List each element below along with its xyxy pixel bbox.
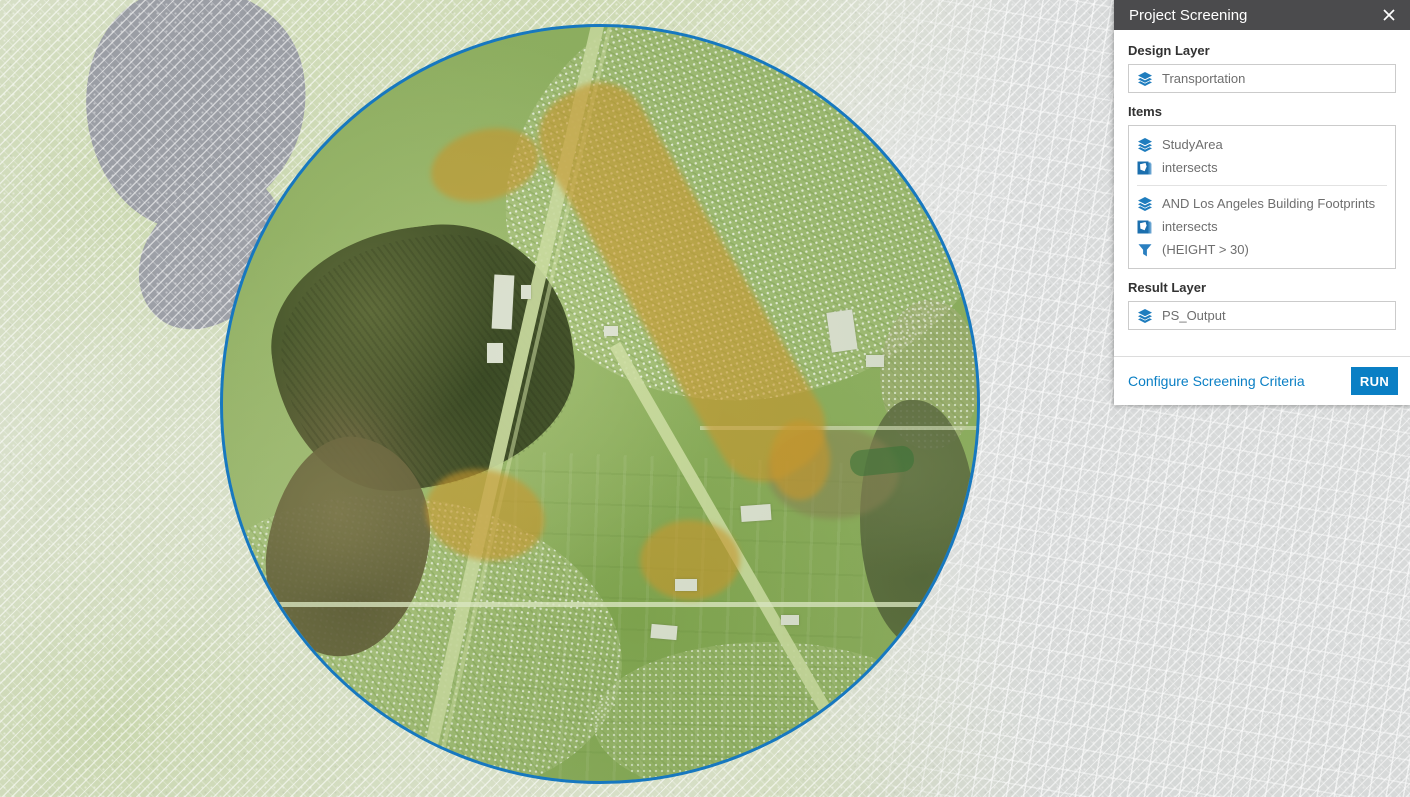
panel-title: Project Screening <box>1129 7 1378 24</box>
building-shape <box>492 275 515 330</box>
run-button[interactable]: RUN <box>1351 367 1398 395</box>
result-layer-input[interactable]: PS_Output <box>1128 301 1396 330</box>
building-shape <box>487 343 503 363</box>
app-window: Project Screening Design Layer Transport… <box>0 0 1410 797</box>
item-text: (HEIGHT > 30) <box>1162 242 1249 257</box>
item-row-building-footprints[interactable]: AND Los Angeles Building Footprints <box>1137 192 1387 215</box>
item-row-intersects-2[interactable]: intersects <box>1137 215 1387 238</box>
building-shape <box>826 309 857 352</box>
close-icon <box>1381 7 1397 23</box>
panel-header: Project Screening <box>1114 0 1410 30</box>
building-shape <box>781 615 799 625</box>
building-shape <box>521 285 531 299</box>
panel-body: Design Layer Transportation Items <box>1114 30 1410 356</box>
layers-icon <box>1137 308 1153 324</box>
layers-icon <box>1137 137 1153 153</box>
close-button[interactable] <box>1378 4 1400 26</box>
natural-area-right <box>860 400 975 650</box>
layers-icon <box>1137 196 1153 212</box>
study-area-circle[interactable] <box>220 24 980 784</box>
building-shape <box>740 504 771 522</box>
items-group-divider <box>1137 185 1387 186</box>
panel-footer: Configure Screening Criteria RUN <box>1114 356 1410 405</box>
intersects-icon <box>1137 219 1153 235</box>
item-row-studyarea[interactable]: StudyArea <box>1137 133 1387 156</box>
configure-screening-criteria-link[interactable]: Configure Screening Criteria <box>1128 373 1305 389</box>
building-shape <box>675 579 697 591</box>
item-row-intersects-1[interactable]: intersects <box>1137 156 1387 179</box>
items-label: Items <box>1128 104 1396 119</box>
design-layer-label: Design Layer <box>1128 43 1396 58</box>
item-text: intersects <box>1162 219 1218 234</box>
layers-icon <box>1137 71 1153 87</box>
result-layer-value: PS_Output <box>1162 308 1226 323</box>
item-row-height-filter[interactable]: (HEIGHT > 30) <box>1137 238 1387 261</box>
design-layer-input[interactable]: Transportation <box>1128 64 1396 93</box>
building-shape <box>866 355 884 367</box>
intersects-icon <box>1137 160 1153 176</box>
design-layer-value: Transportation <box>1162 71 1245 86</box>
road-horizontal <box>223 602 977 607</box>
project-screening-panel: Project Screening Design Layer Transport… <box>1114 0 1410 405</box>
orange-overlay-blob-4 <box>770 420 830 500</box>
item-text: intersects <box>1162 160 1218 175</box>
building-shape <box>650 624 677 640</box>
result-layer-label: Result Layer <box>1128 280 1396 295</box>
building-shape <box>604 326 618 336</box>
item-text: AND Los Angeles Building Footprints <box>1162 196 1375 211</box>
item-text: StudyArea <box>1162 137 1223 152</box>
filter-icon <box>1137 242 1153 258</box>
items-list: StudyArea intersects <box>1128 125 1396 269</box>
